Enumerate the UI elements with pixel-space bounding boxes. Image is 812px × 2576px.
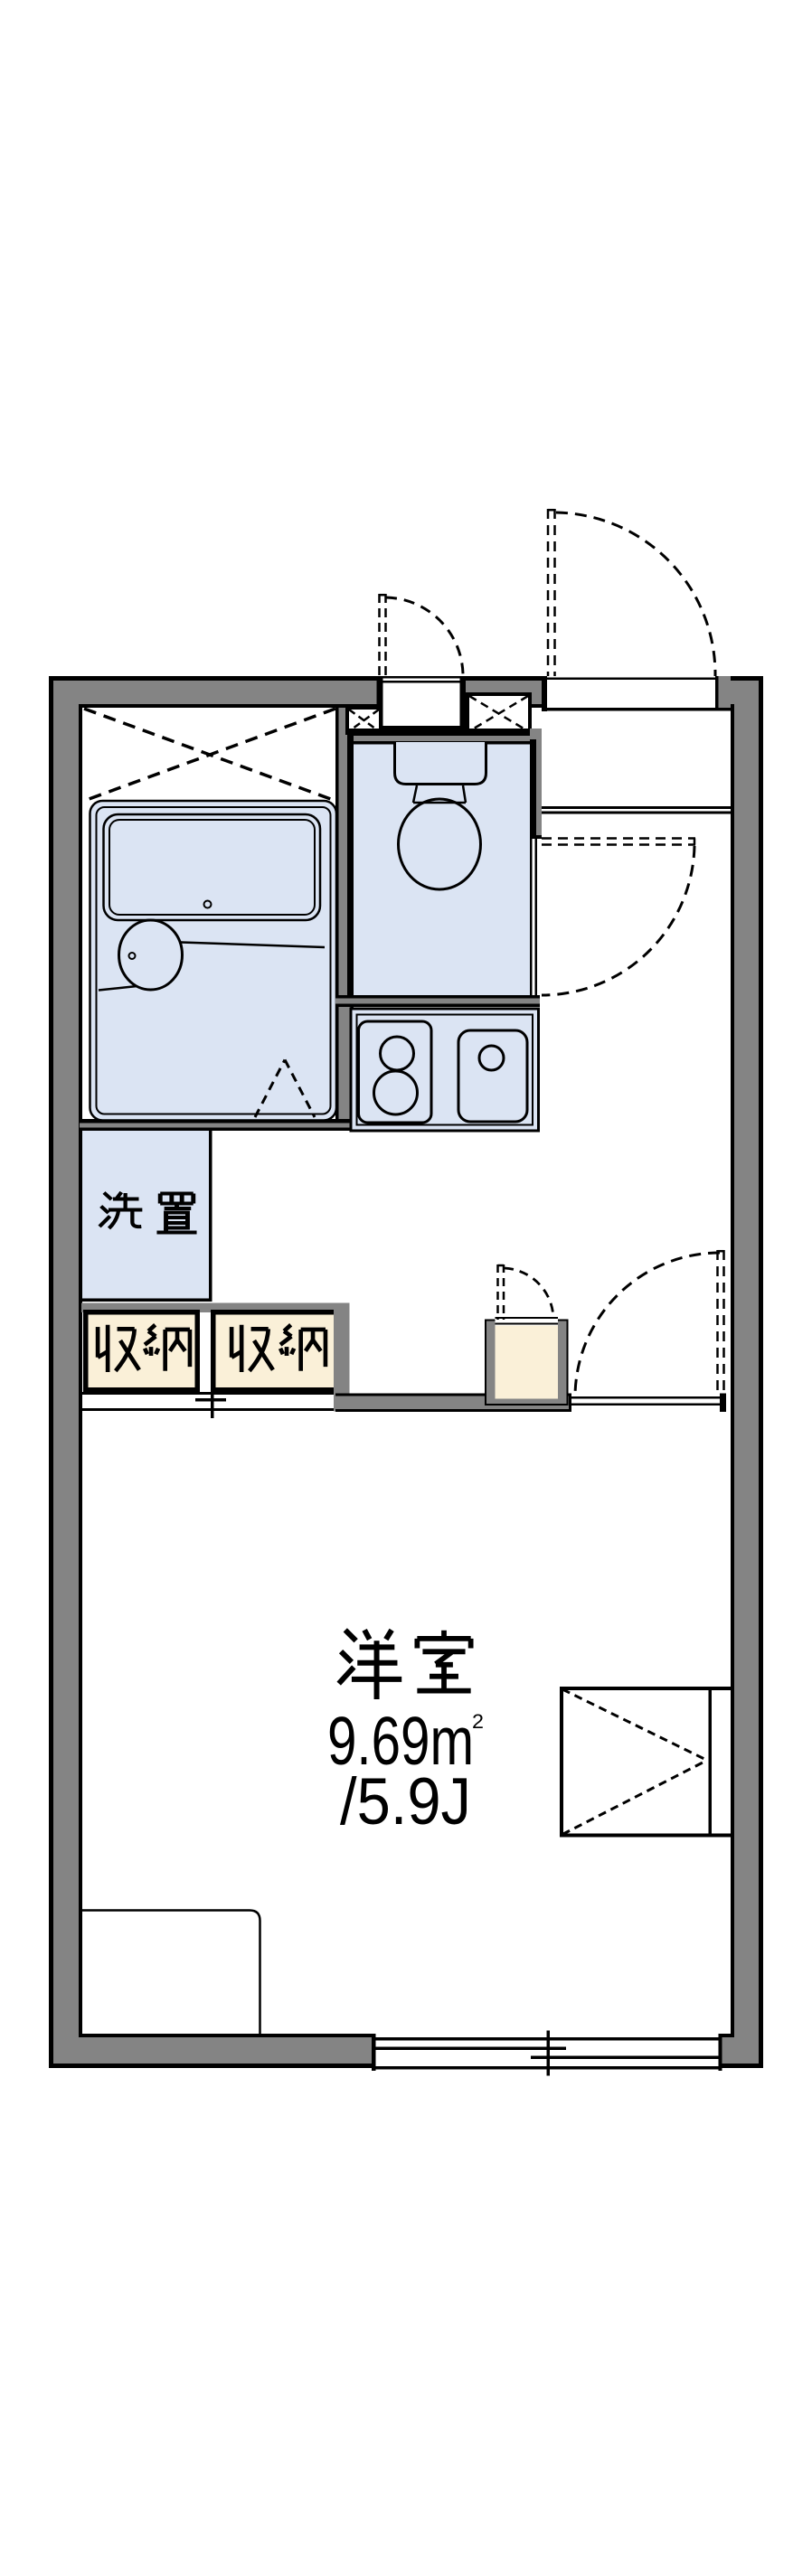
svg-text:2: 2 [472,1710,484,1733]
svg-text:/5.9J: /5.9J [340,1765,471,1838]
